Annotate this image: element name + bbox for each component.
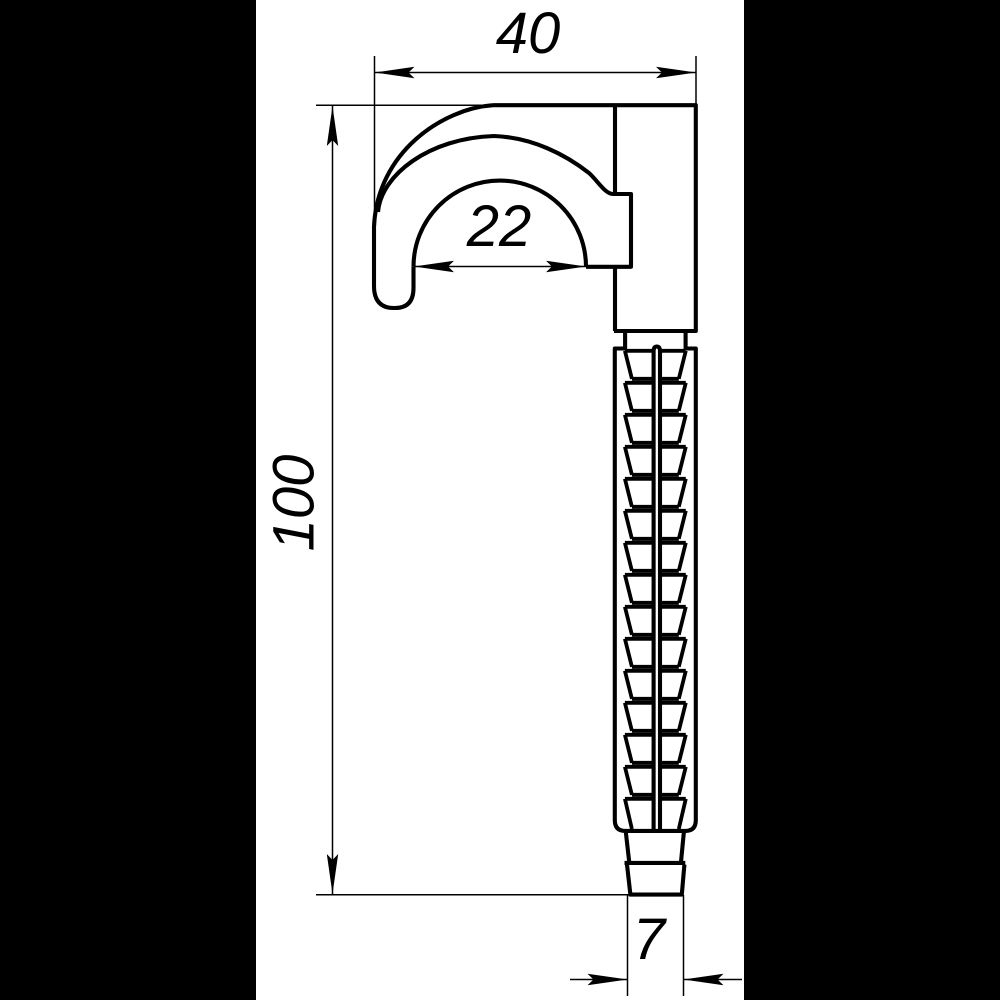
svg-text:7: 7 (633, 907, 668, 972)
svg-text:40: 40 (496, 1, 561, 66)
svg-text:22: 22 (466, 194, 532, 259)
svg-text:100: 100 (262, 455, 327, 552)
